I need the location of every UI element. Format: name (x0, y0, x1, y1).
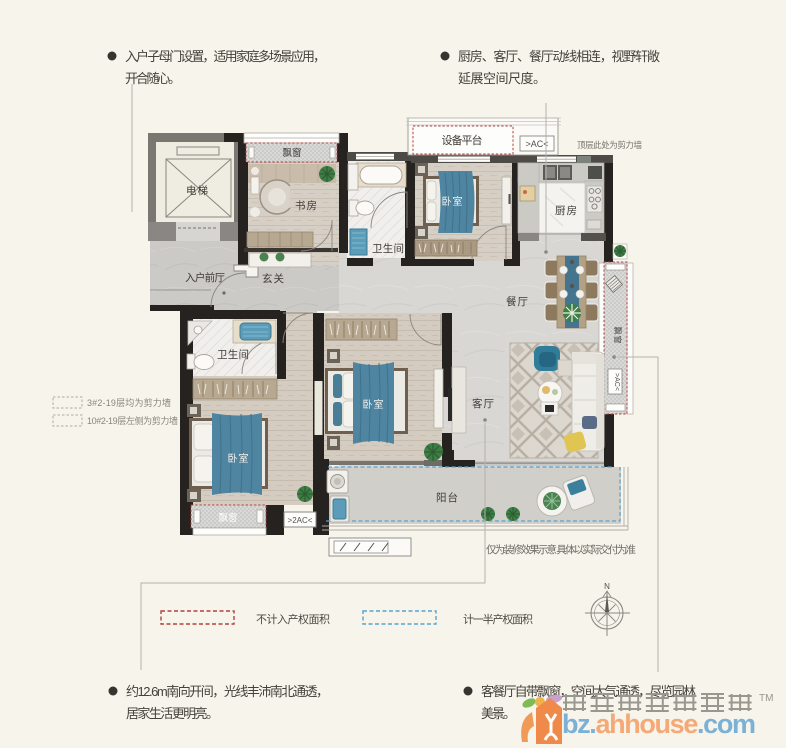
svg-text:阳台: 阳台 (436, 491, 458, 504)
svg-text:仅为装修效果示意 具体以实际交付为准: 仅为装修效果示意 具体以实际交付为准 (486, 543, 636, 556)
svg-text:约12.6m南向开间，光线丰沛南北通透，: 约12.6m南向开间，光线丰沛南北通透， (126, 684, 329, 699)
svg-text:TM: TM (759, 693, 773, 704)
svg-text:设备平台: 设备平台 (442, 133, 483, 147)
svg-text:顶层此处为剪力墙: 顶层此处为剪力墙 (577, 140, 642, 150)
svg-text:入户前厅: 入户前厅 (185, 271, 225, 284)
svg-text:美景。: 美景。 (481, 706, 516, 721)
svg-text:>2AC<: >2AC< (288, 516, 313, 525)
svg-text:>AC<: >AC< (525, 139, 548, 149)
svg-text:不计入产权面积: 不计入产权面积 (256, 612, 330, 626)
svg-text:卧室: 卧室 (363, 398, 384, 411)
svg-text:卫生间: 卫生间 (217, 348, 249, 361)
svg-text:玄关: 玄关 (262, 272, 285, 285)
svg-text:飘窗: 飘窗 (283, 147, 302, 159)
svg-text:卧室: 卧室 (228, 452, 249, 465)
svg-text:开合随心。: 开合随心。 (125, 71, 181, 86)
svg-text:电梯: 电梯 (186, 184, 208, 197)
svg-text:餐厅: 餐厅 (506, 295, 528, 308)
svg-text:飘窗: 飘窗 (219, 512, 238, 524)
svg-text:入户子母门设置，适用家庭多场景应用，: 入户子母门设置，适用家庭多场景应用， (125, 49, 326, 64)
svg-text:书房: 书房 (295, 199, 317, 212)
svg-text:卫生间: 卫生间 (372, 242, 404, 255)
svg-text:延展空间尺度。: 延展空间尺度。 (458, 71, 546, 86)
svg-text:>AC<: >AC< (613, 373, 620, 391)
svg-text:bz.ahhouse.com: bz.ahhouse.com (562, 709, 756, 739)
svg-text:客厅: 客厅 (472, 397, 494, 410)
svg-text:3#2-19层均为剪力墙: 3#2-19层均为剪力墙 (87, 397, 171, 408)
svg-text:10#2-19层左侧为剪力墙: 10#2-19层左侧为剪力墙 (87, 415, 178, 426)
svg-text:飘窗: 飘窗 (613, 327, 623, 344)
svg-text:计一半产权面积: 计一半产权面积 (463, 612, 533, 626)
svg-text:厨房: 厨房 (555, 204, 577, 217)
svg-text:厨房、客厅、餐厅动线相连，视野轩敞: 厨房、客厅、餐厅动线相连，视野轩敞 (458, 49, 660, 64)
svg-text:卧室: 卧室 (442, 195, 463, 208)
svg-text:居家生活更明亮。: 居家生活更明亮。 (126, 706, 219, 721)
svg-text:N: N (604, 582, 610, 591)
